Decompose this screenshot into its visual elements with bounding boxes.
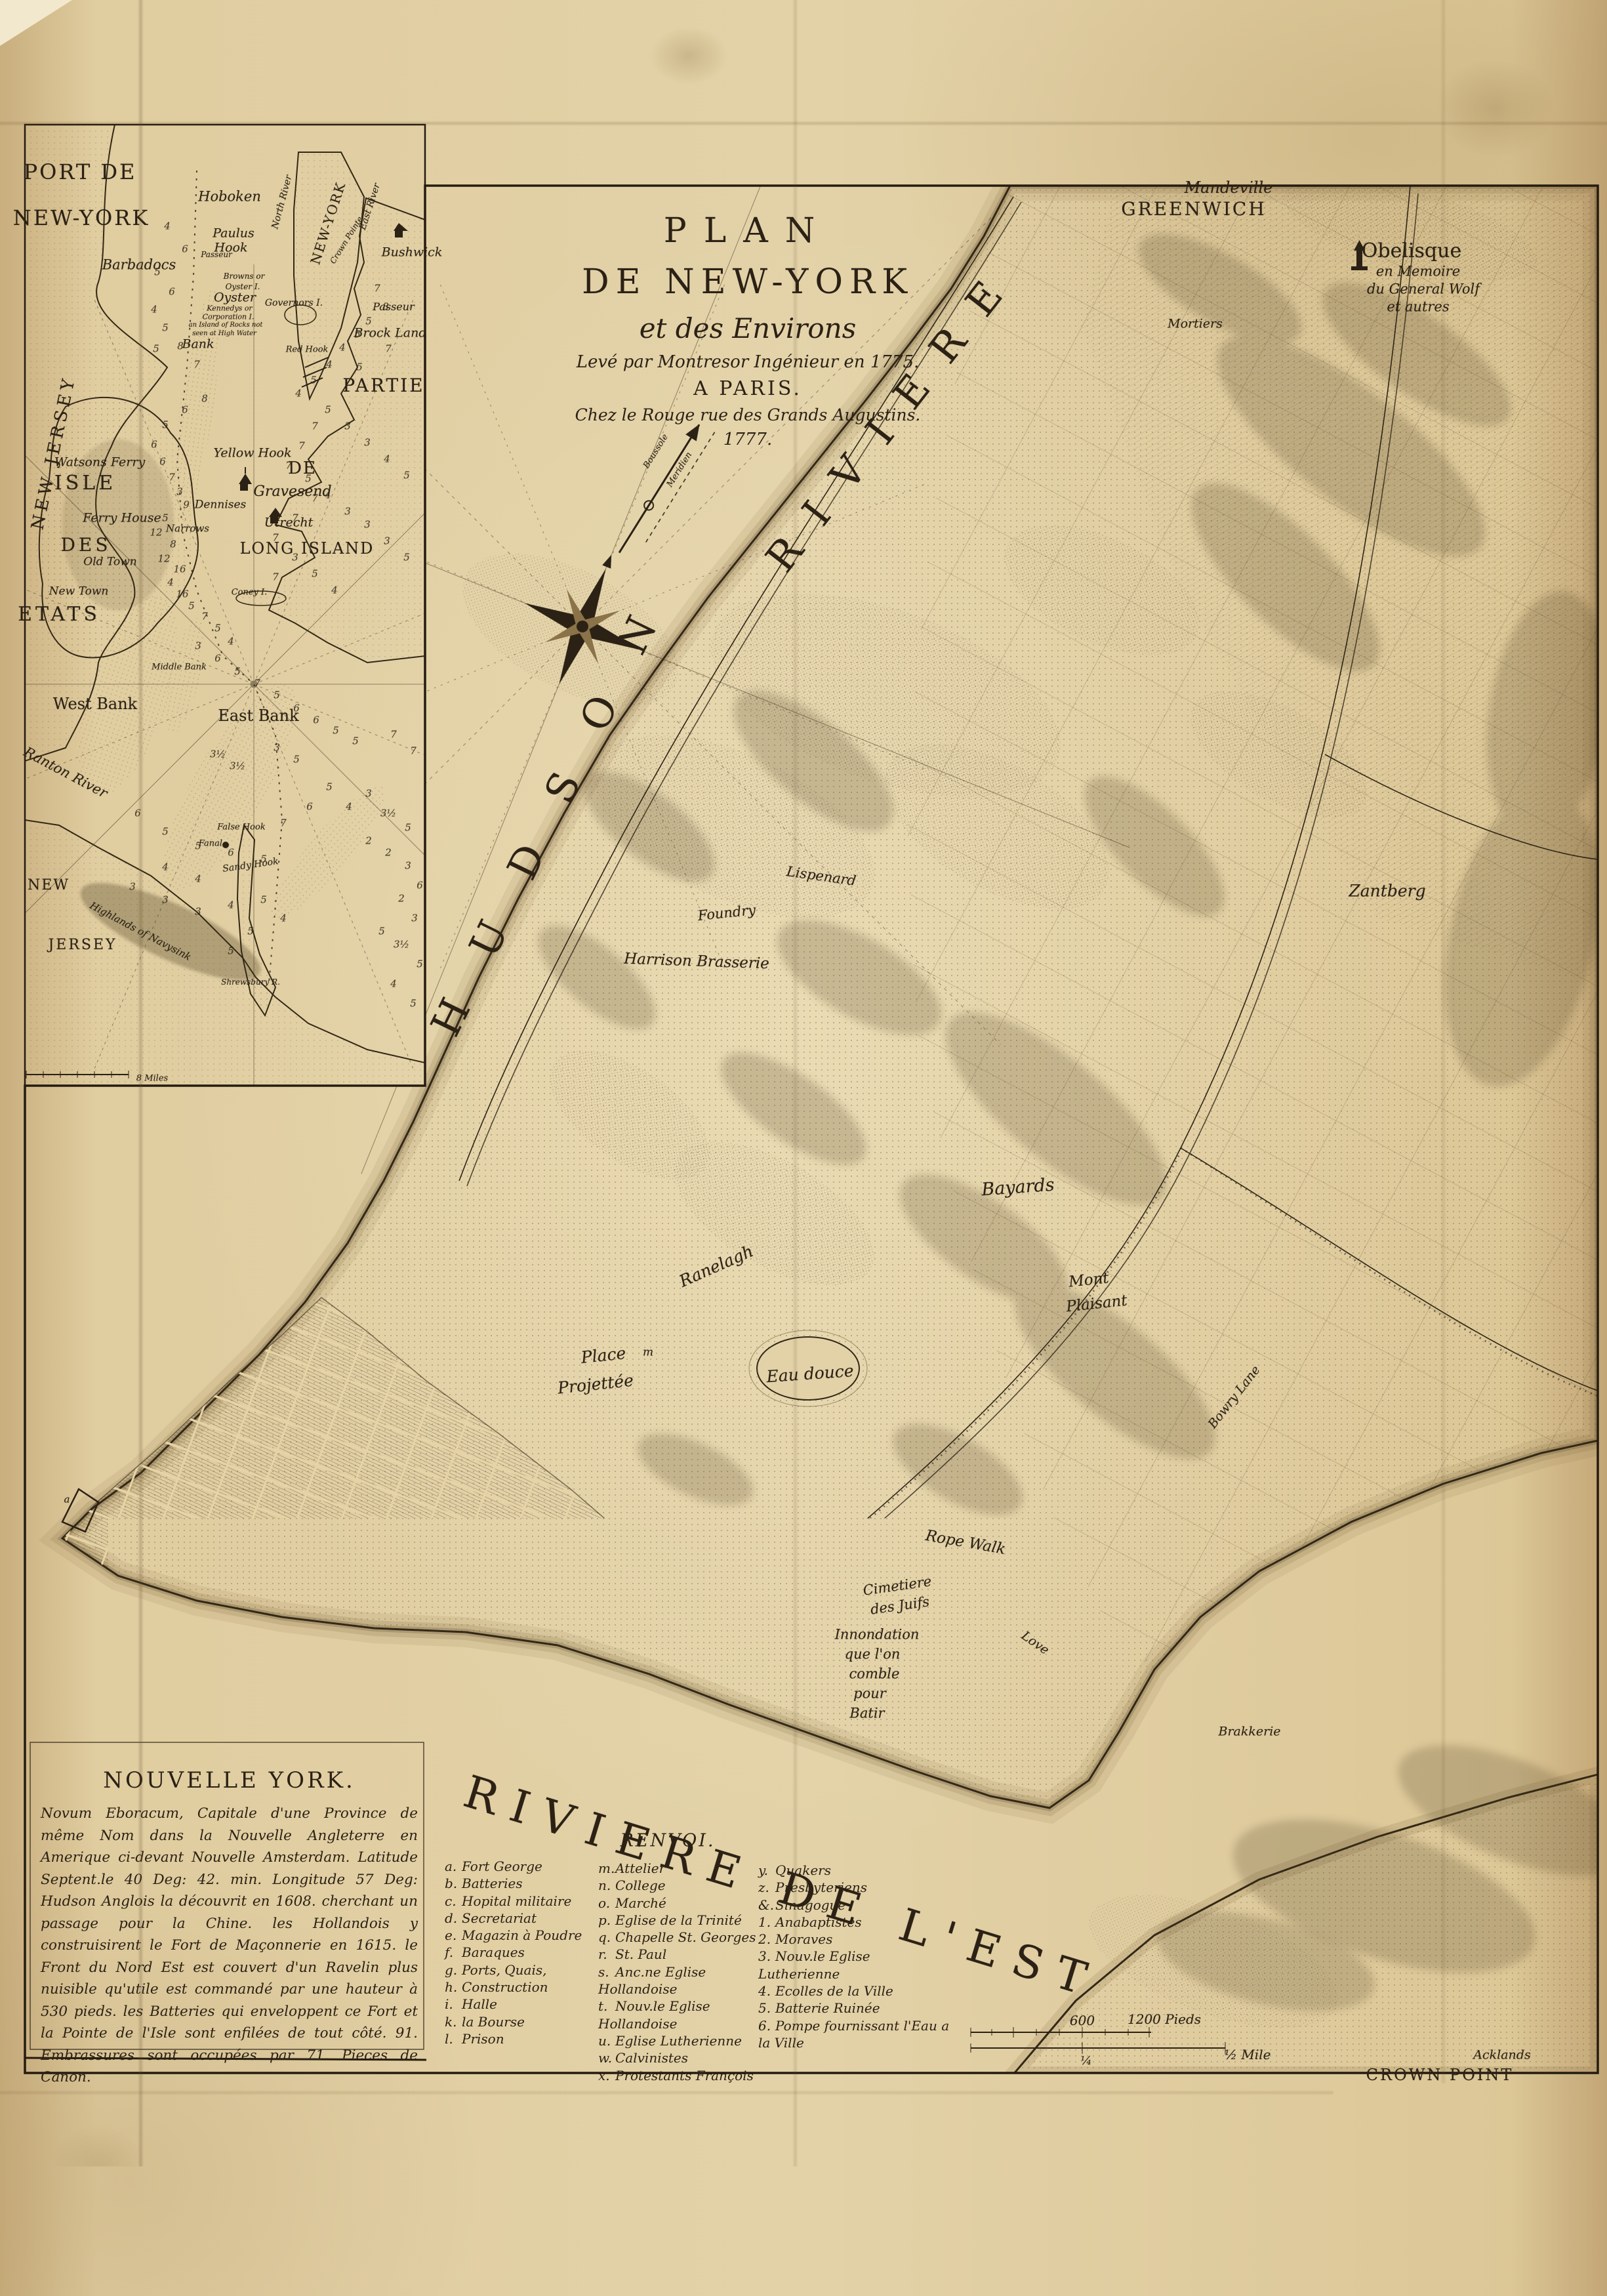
map-label: Bushwick — [382, 247, 443, 259]
sounding-depth: 7 — [169, 473, 175, 483]
sounding-depth: 5 — [365, 317, 372, 327]
sounding-depth: 5 — [312, 569, 318, 579]
legend-item: g.Ports, Quais, — [445, 1961, 594, 1978]
legend-item: i.Halle — [445, 1996, 594, 2013]
map-label: Red Hook — [286, 346, 329, 354]
legend-label: Baraques — [462, 1944, 525, 1960]
map-label: Mortiers — [1168, 318, 1223, 331]
legend-key: 1. — [758, 1914, 775, 1931]
sounding-depth: 3 — [405, 861, 411, 871]
sounding-depth: 5 — [195, 842, 201, 851]
map-label: Innondation — [835, 1628, 920, 1642]
map-label: du General Wolf — [1367, 283, 1480, 297]
sounding-depth: 9 — [183, 501, 190, 510]
sounding-depth: 7 — [285, 461, 292, 471]
sounding-depth: 12 — [157, 554, 170, 564]
sounding-depth: 3 — [364, 438, 371, 448]
legend-item: m.Attelier — [598, 1860, 761, 1877]
legend-label: Magazin à Poudre — [462, 1927, 582, 1943]
sounding-depth: 6 — [306, 802, 313, 812]
legend-label: Chapelle St. Georges — [615, 1929, 756, 1945]
map-label: Plaisant — [1065, 1294, 1128, 1315]
map-label: Meridien — [666, 451, 694, 489]
sounding-depth: 5 — [326, 783, 333, 792]
sounding-depth: 16 — [173, 565, 186, 575]
legend-item: c.Hopital militaire — [445, 1893, 594, 1910]
sounding-depth: 7 — [374, 284, 380, 294]
sounding-depth: 2 — [385, 848, 392, 858]
sounding-depth: 4 — [390, 979, 397, 989]
sounding-depth: 4 — [326, 360, 333, 370]
label-eau-douce: Eau douce — [766, 1363, 855, 1385]
map-label: en Memoire — [1376, 265, 1460, 279]
map-label: Fanal — [199, 840, 222, 848]
description-block: NOUVELLE YORK. Novum Eboracum, Capitale … — [41, 1767, 418, 2089]
sounding-depth: 8 — [201, 394, 208, 404]
legend-label: la Bourse — [462, 2014, 525, 2030]
sounding-depth: 4 — [167, 578, 174, 588]
map-label: PARTIE — [342, 377, 424, 395]
sounding-depth: 5 — [260, 895, 267, 905]
sounding-depth: 7 — [292, 514, 298, 523]
sounding-depth: 7 — [201, 612, 208, 622]
legend-label: Fort George — [462, 1858, 542, 1874]
map-label: que l'on — [845, 1648, 901, 1662]
map-label: Dennises — [195, 500, 247, 511]
legend-item: x.Protestants François — [598, 2067, 761, 2084]
sounding-depth: 6 — [182, 245, 188, 255]
map-label: an Island of Rocks not — [189, 322, 263, 329]
legend-item: b.Batteries — [445, 1875, 594, 1892]
sounding-depth: 4 — [384, 455, 390, 464]
sounding-depth: 7 — [298, 441, 305, 451]
legend-label: Eglise Lutherienne — [615, 2033, 742, 2049]
legend-label: College — [615, 1877, 666, 1893]
map-label: m — [643, 1347, 653, 1359]
legend-label: Anabaptistes — [775, 1914, 862, 1930]
sounding-depth: 5 — [325, 405, 331, 415]
map-label: ¼ — [1080, 2055, 1091, 2067]
map-label: Sandy Hook — [222, 857, 279, 874]
legend-item: k.la Bourse — [445, 2013, 594, 2030]
legend-item: u.Eglise Lutherienne — [598, 2032, 761, 2049]
legend-item: y.Quakers — [758, 1862, 955, 1879]
sounding-depth: 8 — [177, 342, 184, 352]
legend-item: s.Anc.ne Eglise Hollandoise — [598, 1963, 761, 1998]
legend-key: 6. — [758, 2017, 775, 2034]
legend-item: 3.Nouv.le Eglise Lutherienne — [758, 1948, 955, 1982]
sounding-depth: 7 — [312, 422, 318, 432]
sounding-depth: 3 — [129, 882, 136, 892]
map-label: a — [64, 1495, 70, 1505]
legend-label: Quakers — [775, 1862, 831, 1878]
sounding-depth: 6 — [134, 809, 141, 819]
legend-label: Hopital militaire — [462, 1893, 571, 1909]
sounding-depth: 4 — [162, 863, 169, 872]
legend-key: i. — [445, 1996, 462, 2013]
legend-key: 4. — [758, 1982, 775, 1999]
map-label: Utrecht — [264, 517, 314, 529]
label-obelisque: Obelisque — [1362, 241, 1461, 261]
map-surveyor: Levé par Montresor Ingénieur en 1775. — [498, 352, 997, 372]
sounding-depth: 5 — [162, 420, 169, 430]
sounding-depth: 7 — [272, 573, 279, 583]
sounding-depth: 5 — [162, 514, 169, 523]
sounding-depth: 5 — [260, 855, 267, 865]
map-imprint-city: A PARIS. — [498, 377, 997, 400]
legend-key: 3. — [758, 1948, 775, 1965]
legend-label: Batteries — [462, 1876, 523, 1891]
sounding-depth: 7 — [385, 344, 392, 354]
legend-key: w. — [598, 2049, 615, 2066]
legend-label: Calvinistes — [615, 2050, 688, 2066]
map-label: DE — [288, 460, 317, 477]
legend-key: n. — [598, 1877, 615, 1894]
map-label: Hoboken — [198, 190, 261, 204]
legend-item: 2.Moraves — [758, 1931, 955, 1948]
sounding-depth: 5 — [153, 344, 159, 354]
sounding-depth: 4 — [280, 914, 287, 924]
sounding-depth: 4 — [331, 586, 338, 596]
legend-item: d.Secretariat — [445, 1910, 594, 1927]
legend-key: l. — [445, 2030, 462, 2047]
map-label: Brakkerie — [1218, 1726, 1280, 1738]
map-label: Love — [1019, 1630, 1051, 1657]
sounding-depth: 6 — [313, 716, 319, 726]
sounding-depth: 5 — [293, 755, 300, 765]
map-label: Rope Walk — [924, 1528, 1007, 1557]
map-label: New Town — [49, 586, 109, 598]
map-label: Yellow Hook — [214, 447, 292, 460]
map-label: Bowry Lane — [1206, 1364, 1263, 1431]
sounding-depth: 5 — [234, 667, 241, 677]
sounding-depth: 3 — [365, 789, 372, 799]
map-label: Foundry — [697, 903, 756, 923]
legend-key: s. — [598, 1963, 615, 1980]
sounding-depth: 6 — [169, 287, 175, 297]
map-label: Old Town — [83, 557, 136, 568]
legend-key: d. — [445, 1910, 462, 1927]
sounding-depth: 4 — [151, 305, 157, 315]
sounding-depth: 4 — [346, 802, 352, 812]
map-label: East River — [358, 182, 382, 231]
map-label: Passeur — [201, 251, 232, 258]
label-zantberg: Zantberg — [1349, 883, 1425, 899]
legend-label: Construction — [462, 1979, 548, 1995]
legend-key: m. — [598, 1860, 615, 1877]
map-title-2: DE NEW-YORK — [498, 262, 997, 302]
sounding-depth: 5 — [228, 947, 234, 956]
sounding-depth: 5 — [188, 602, 195, 611]
sounding-depth: 4 — [195, 874, 201, 884]
sounding-depth: 7 — [254, 679, 260, 689]
map-label: Shrewsbury R. — [221, 978, 280, 986]
legend-key: x. — [598, 2067, 615, 2084]
sounding-depth: 5 — [378, 927, 385, 937]
sounding-depth: 6 — [159, 457, 166, 467]
legend-label: Ports, Quais, — [462, 1962, 546, 1978]
map-label: Gravesend — [253, 485, 331, 499]
map-label: Ranton River — [22, 745, 110, 800]
legend-item: z.Presbyteriens — [758, 1879, 955, 1896]
sounding-depth: 3 — [364, 520, 371, 530]
legend-key: u. — [598, 2032, 615, 2049]
legend-key: a. — [445, 1858, 462, 1875]
sounding-depth: 5 — [162, 323, 169, 333]
legend-key: &. — [758, 1896, 775, 1914]
description-text: Novum Eboracum, Capitale d'une Province … — [41, 1803, 418, 2089]
map-label: Place — [580, 1345, 627, 1366]
sounding-depth: 12 — [150, 528, 162, 538]
sounding-depth: 5 — [403, 553, 410, 563]
sounding-depth: 3½ — [210, 750, 226, 760]
legend-column-1: a.Fort Georgeb.Batteriesc.Hopital milita… — [445, 1858, 594, 2047]
map-date: 1777. — [498, 430, 997, 449]
sounding-depth: 7 — [390, 730, 397, 740]
map-label: LONG ISLAND — [240, 541, 375, 556]
legend-column-3: y.Quakersz.Presbyteriens&.Sinagogue1.Ana… — [758, 1862, 955, 2051]
legend-key: q. — [598, 1929, 615, 1946]
legend-key: p. — [598, 1912, 615, 1929]
map-label: NEW — [28, 878, 70, 893]
map-label: Narrows — [166, 524, 209, 534]
map-label: ISLE — [54, 474, 116, 493]
sounding-depth: 3 — [176, 487, 183, 497]
legend-key: o. — [598, 1895, 615, 1912]
map-label: Barbadocs — [102, 258, 176, 272]
sounding-depth: 6 — [228, 848, 234, 858]
legend-label: Attelier — [615, 1860, 665, 1876]
map-label: Kennedys or — [207, 305, 252, 312]
sounding-depth: 3 — [162, 895, 169, 905]
sounding-depth: 5 — [333, 726, 339, 736]
map-label: pour — [853, 1687, 886, 1701]
map-label: Passeur — [373, 302, 414, 312]
sounding-depth: 8 — [382, 302, 389, 312]
map-label: False Hook — [217, 823, 265, 832]
legend-label: Nouv.le Eglise Hollandoise — [598, 1998, 710, 2031]
sounding-depth: 4 — [228, 901, 234, 911]
legend-item: e.Magazin à Poudre — [445, 1927, 594, 1944]
legend-key: z. — [758, 1879, 775, 1896]
sounding-depth: 5 — [162, 827, 169, 837]
map-label: Coney I. — [232, 588, 268, 597]
legend-label: Marché — [615, 1895, 666, 1911]
map-subtitle: et des Environs — [498, 312, 997, 344]
legend-key: b. — [445, 1875, 462, 1892]
map-publisher: Chez le Rouge rue des Grands Augustins. — [498, 405, 997, 424]
legend-label: Moraves — [775, 1931, 832, 1947]
sounding-depth: 3½ — [380, 809, 396, 819]
sounding-depth: 3 — [292, 553, 298, 563]
legend-item: n.College — [598, 1877, 761, 1894]
sounding-depth: 5 — [247, 927, 254, 937]
legend-column-2: m.Atteliern.Collegeo.Marchép.Eglise de l… — [598, 1860, 761, 2084]
legend-label: Presbyteriens — [775, 1879, 867, 1895]
map-label: 600 — [1070, 2014, 1095, 2027]
map-label: West Bank — [53, 696, 137, 712]
sounding-depth: 5 — [310, 376, 317, 386]
sounding-depth: 3 — [195, 907, 201, 917]
legend-item: w.Calvinistes — [598, 2049, 761, 2066]
map-label: Oyster I. — [226, 283, 260, 291]
map-label: Acklands — [1473, 2049, 1530, 2062]
legend-key: g. — [445, 1961, 462, 1978]
sounding-depth: 8 — [170, 540, 176, 550]
sounding-depth: 4 — [339, 343, 346, 353]
legend-item: 1.Anabaptistes — [758, 1914, 955, 1931]
map-label: Oyster — [214, 292, 256, 304]
legend-key: r. — [598, 1946, 615, 1963]
legend-item: p.Eglise de la Trinité — [598, 1912, 761, 1929]
sounding-depth: 3 — [195, 642, 201, 651]
legend-item: 4.Ecolles de la Ville — [758, 1982, 955, 1999]
sounding-depth: 6 — [293, 704, 300, 714]
legend-label: Prison — [462, 2031, 504, 2047]
label-mandeville: Mandeville — [1185, 180, 1273, 195]
inset-title: PORT DE — [24, 161, 137, 182]
map-label: Governors I. — [265, 298, 323, 308]
map-label: Mont — [1068, 1271, 1110, 1290]
map-label: ETATS — [18, 605, 100, 625]
label-hudson-river: H U D S O N — [425, 592, 672, 1042]
map-label: Brock Land — [354, 327, 426, 340]
description-title: NOUVELLE YORK. — [41, 1767, 418, 1794]
map-label: seen at High Water — [192, 331, 256, 337]
sounding-depth: 3 — [344, 507, 351, 517]
map-label: Browns or — [224, 272, 265, 280]
map-label: Bayards — [981, 1176, 1055, 1199]
legend-title: RENVOI. — [620, 1831, 715, 1851]
map-label: Middle Bank — [152, 663, 207, 672]
legend-key: k. — [445, 2013, 462, 2030]
map-label: 1200 Pieds — [1128, 2013, 1201, 2026]
sounding-depth: 2 — [398, 894, 405, 904]
legend-item: h.Construction — [445, 1978, 594, 1996]
map-label: Watsons Ferry — [54, 457, 145, 469]
map-label: ½ Mile — [1225, 2048, 1271, 2061]
sounding-depth: 6 — [151, 440, 157, 450]
sounding-depth: 5 — [354, 330, 361, 340]
legend-label: Ecolles de la Ville — [775, 1983, 893, 1999]
map-label: Ferry House — [83, 512, 161, 525]
legend-label: Batterie Ruinée — [775, 2000, 880, 2016]
map-label: DES — [60, 536, 111, 554]
legend-item: 6.Pompe fournissant l'Eau a la Ville — [758, 2017, 955, 2052]
legend-key: 5. — [758, 1999, 775, 2017]
map-label: des Juifs — [870, 1595, 931, 1616]
sounding-depth: 5 — [417, 960, 423, 970]
map-label: Lispenard — [786, 865, 857, 888]
legend-key: e. — [445, 1927, 462, 1944]
sounding-depth: 16 — [176, 590, 188, 600]
sounding-depth: 3 — [384, 537, 390, 546]
sounding-depth: 3½ — [230, 762, 245, 771]
sounding-depth: 5 — [356, 363, 363, 373]
legend-item: a.Fort George — [445, 1858, 594, 1875]
sounding-depth: 6 — [182, 405, 188, 415]
sounding-depth: 2 — [365, 836, 372, 846]
map-label: NEW JERSEY — [29, 374, 78, 531]
map-label: Batir — [849, 1707, 884, 1721]
legend-label: Protestants François — [615, 2068, 754, 2083]
map-label: Corporation I. — [203, 314, 254, 321]
legend-item: r.St. Paul — [598, 1946, 761, 1963]
map-title: PLAN — [498, 211, 997, 251]
sounding-depth: 7 — [312, 494, 318, 504]
map-label: et autres — [1387, 300, 1449, 314]
sounding-depth: 5 — [403, 471, 410, 481]
title-cartouche: PLAN DE NEW-YORK et des Environs Levé pa… — [498, 211, 997, 449]
sounding-depth: 6 — [417, 881, 423, 891]
sounding-depth: 5 — [410, 999, 417, 1009]
sounding-depth: 5 — [352, 737, 359, 747]
sounding-depth: 4 — [295, 389, 302, 399]
map-label: comble — [849, 1668, 900, 1681]
legend-item: f.Baraques — [445, 1944, 594, 1961]
sounding-depth: 5 — [405, 823, 411, 833]
sounding-depth: 5 — [214, 624, 221, 634]
sounding-depth: 4 — [164, 222, 171, 232]
legend-label: Pompe fournissant l'Eau a la Ville — [758, 2018, 949, 2051]
legend-key: f. — [445, 1944, 462, 1961]
map-label: 8 Miles — [136, 1075, 168, 1083]
sounding-depth: 7 — [280, 819, 287, 829]
sounding-depth: 3 — [344, 422, 351, 432]
legend-key: h. — [445, 1978, 462, 1996]
map-sheet: MandevilleGREENWICHObelisqueen Memoiredu… — [0, 0, 1607, 2296]
inset-title-2: NEW-YORK — [13, 207, 150, 228]
legend-item: &.Sinagogue — [758, 1896, 955, 1914]
label-greenwich: GREENWICH — [1121, 200, 1267, 218]
map-label: Paulus — [213, 228, 254, 240]
sounding-depth: 7 — [272, 533, 279, 543]
legend-label: Halle — [462, 1996, 497, 2012]
sounding-depth: 6 — [214, 654, 221, 664]
sounding-depth: 4 — [228, 637, 234, 647]
legend-item: o.Marché — [598, 1895, 761, 1912]
map-label: North River — [270, 174, 293, 230]
map-label: JERSEY — [48, 938, 117, 953]
sounding-depth: 3½ — [394, 940, 409, 950]
legend-item: q.Chapelle St. Georges — [598, 1929, 761, 1946]
label-crown-point: CROWN POINT — [1366, 2067, 1514, 2083]
legend-label: Secretariat — [462, 1910, 537, 1926]
legend-key: 2. — [758, 1931, 775, 1948]
legend-label: St. Paul — [615, 1946, 666, 1962]
map-label: East Bank — [218, 708, 298, 724]
legend-item: l.Prison — [445, 2030, 594, 2047]
sounding-depth: 7 — [193, 360, 200, 370]
map-label: Harrison Brasserie — [624, 952, 769, 972]
sounding-depth: 5 — [274, 691, 280, 701]
legend-label: Sinagogue — [775, 1897, 845, 1913]
sounding-depth: 5 — [154, 268, 161, 277]
legend-item: 5.Batterie Ruinée — [758, 1999, 955, 2017]
legend-item: t.Nouv.le Eglise Hollandoise — [598, 1998, 761, 2032]
sounding-depth: 3 — [274, 743, 280, 753]
sounding-depth: 5 — [305, 474, 312, 484]
sounding-depth: 3 — [411, 914, 418, 924]
map-label: Projettée — [557, 1372, 634, 1397]
legend-key: c. — [445, 1893, 462, 1910]
sounding-depth: 4 — [325, 491, 331, 501]
legend-key: t. — [598, 1998, 615, 2015]
legend-label: Nouv.le Eglise Lutherienne — [758, 1948, 870, 1981]
sounding-depth: 7 — [410, 747, 417, 756]
legend-label: Eglise de la Trinité — [615, 1912, 742, 1928]
label-ranelagh: Ranelagh — [677, 1242, 756, 1290]
